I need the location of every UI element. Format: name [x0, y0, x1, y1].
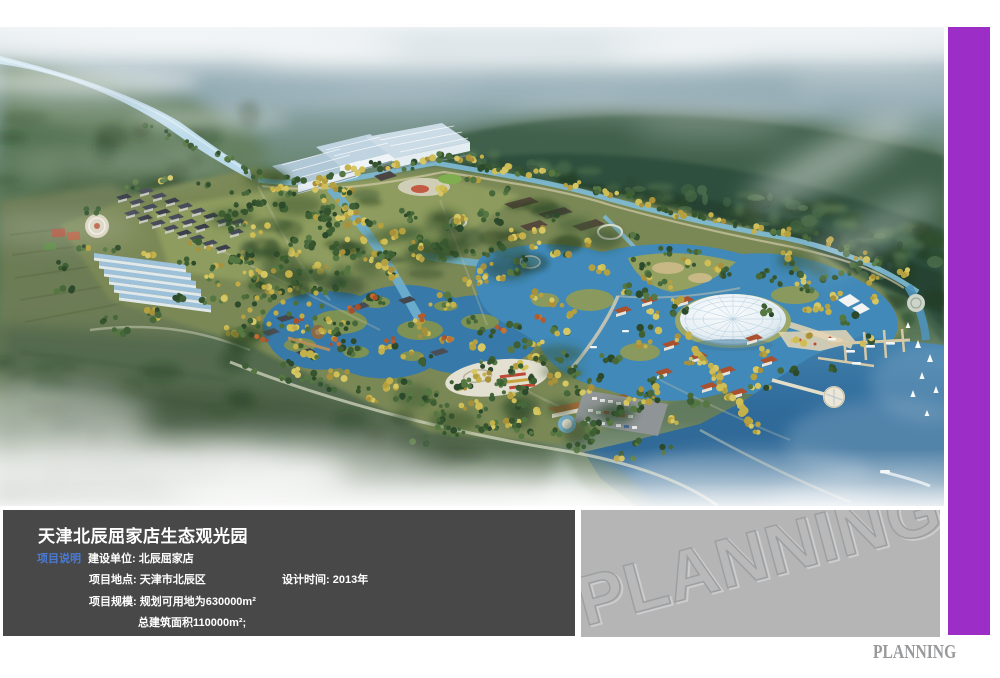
svg-text:PLANNING: PLANNING: [581, 510, 940, 637]
